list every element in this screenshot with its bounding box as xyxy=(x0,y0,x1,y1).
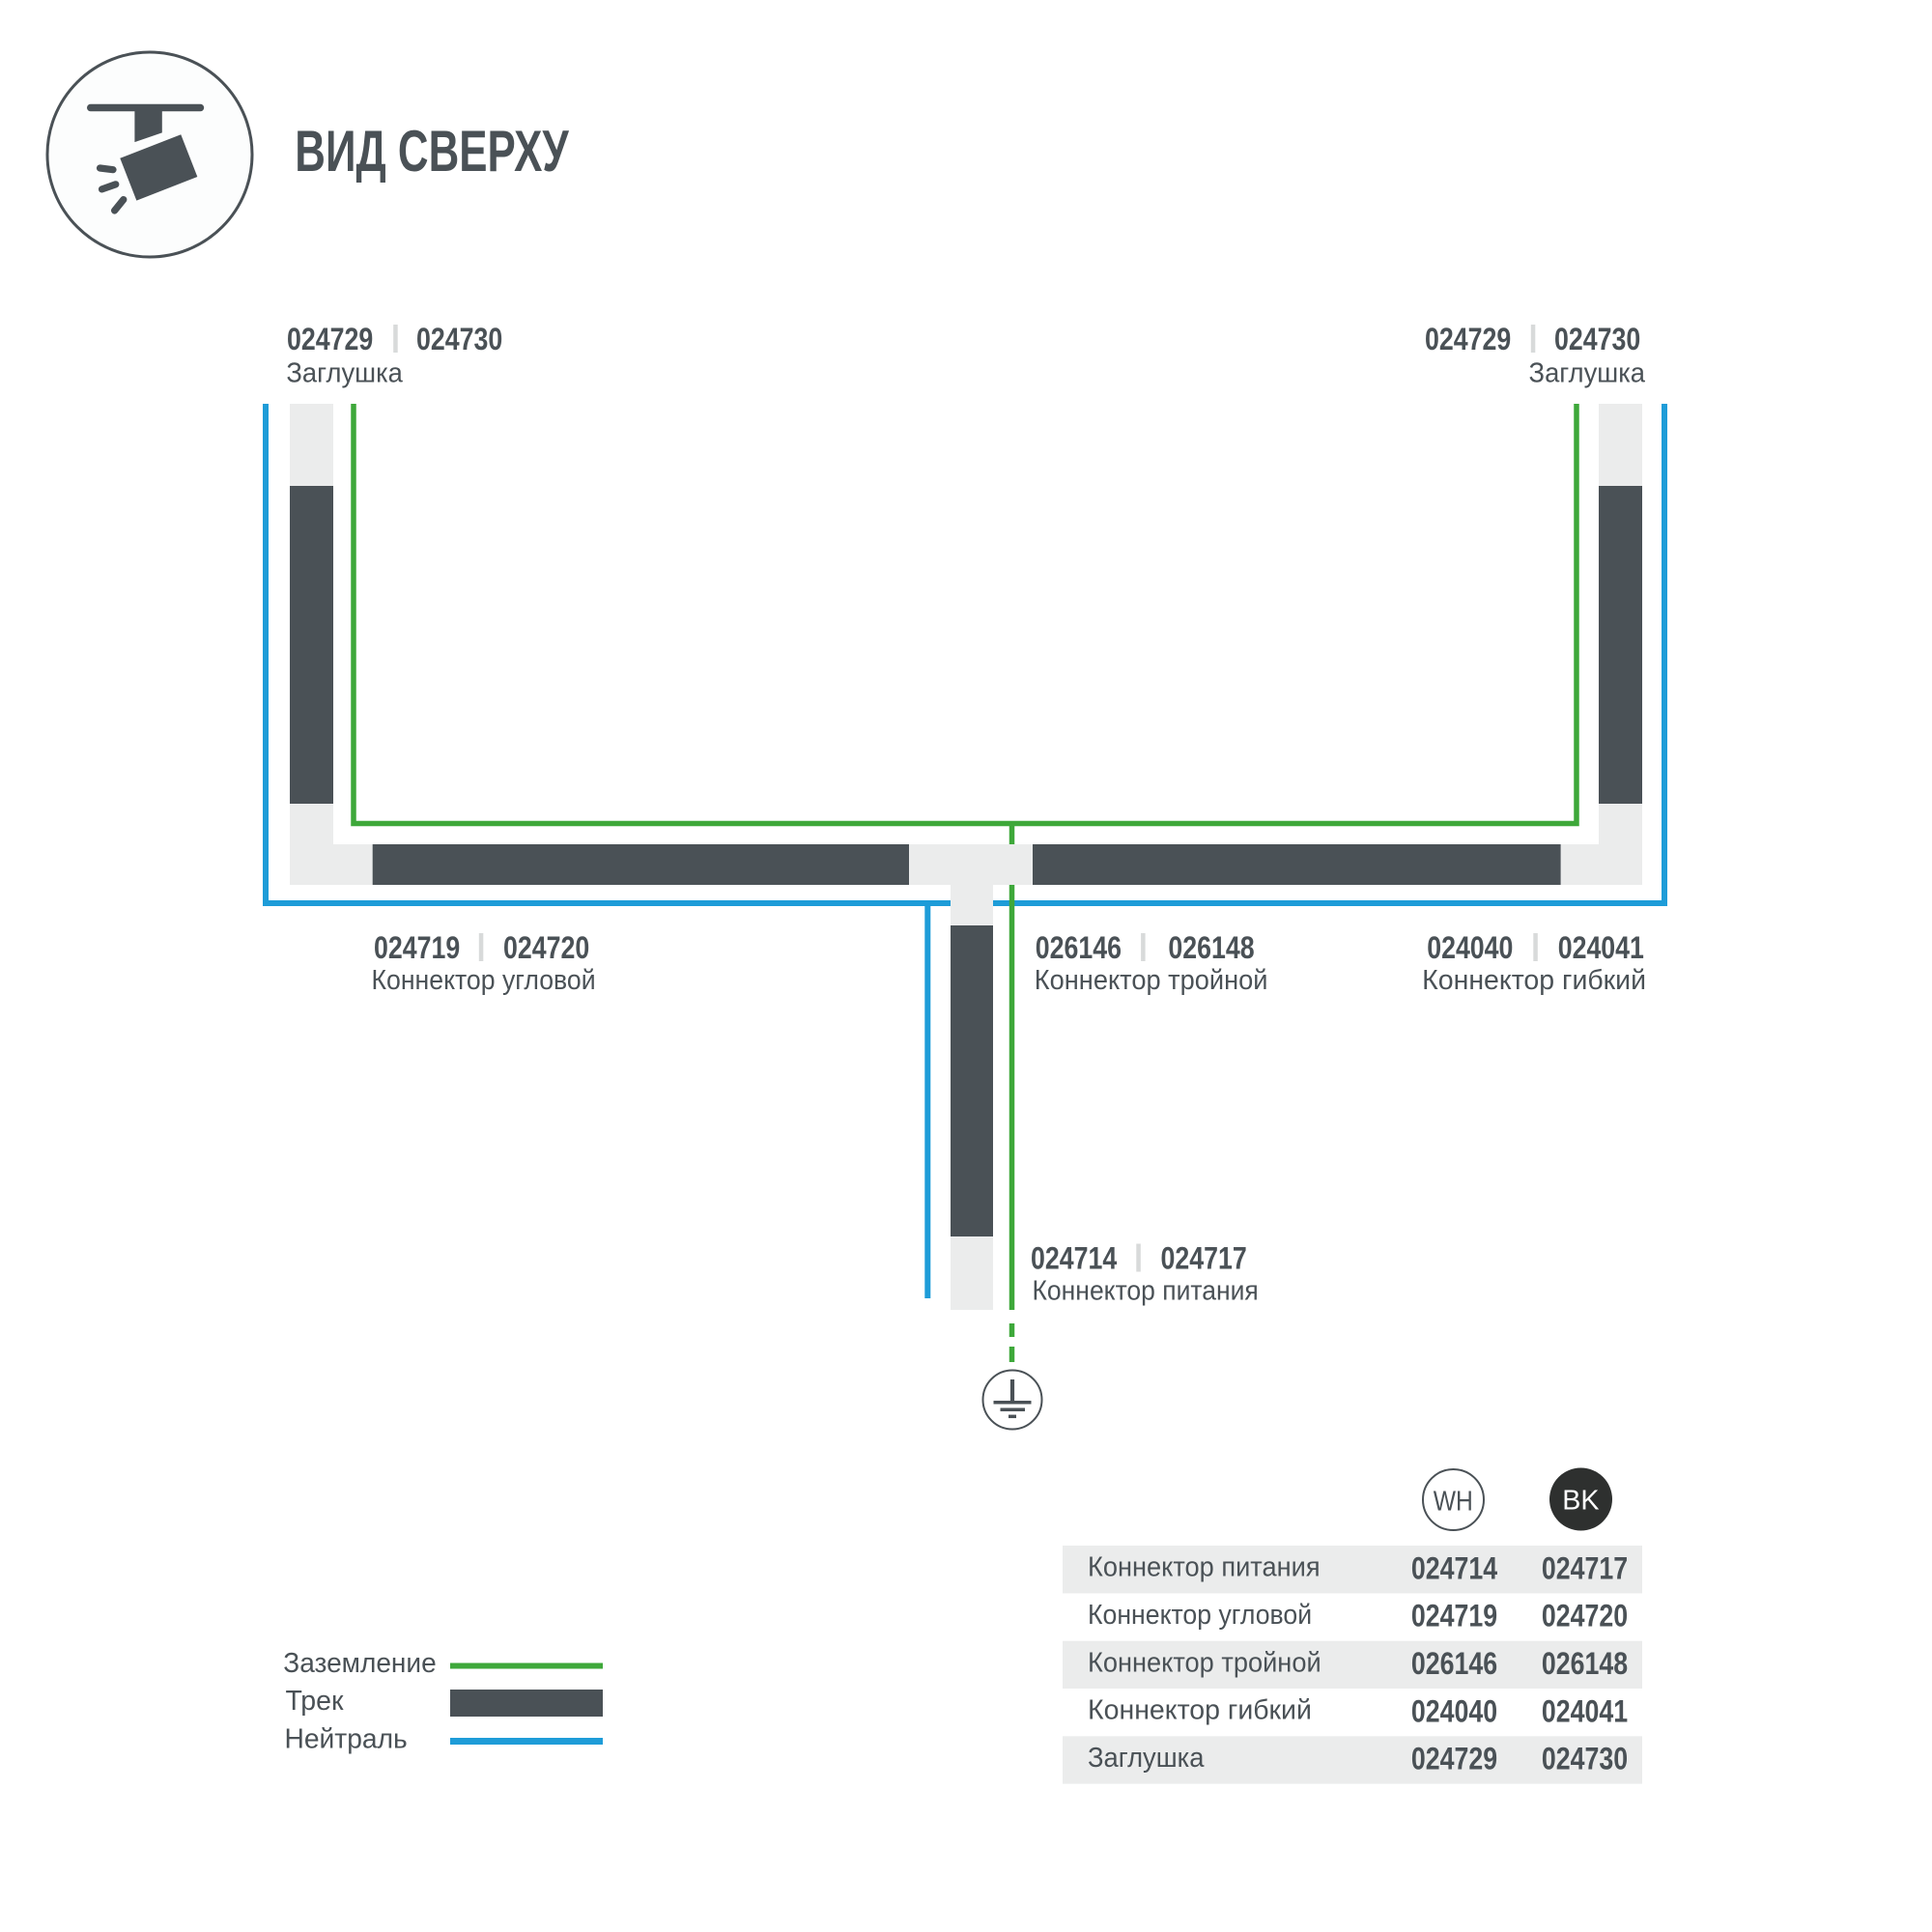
svg-text:Коннектор угловой: Коннектор угловой xyxy=(372,964,596,995)
svg-text:Коннектор питания: Коннектор питания xyxy=(1088,1551,1321,1582)
svg-text:BK: BK xyxy=(1562,1485,1599,1516)
svg-text:024714: 024714 xyxy=(1411,1551,1498,1586)
svg-text:026146: 026146 xyxy=(1036,931,1122,966)
svg-text:ВИД СВЕРХУ: ВИД СВЕРХУ xyxy=(295,119,569,184)
svg-text:024717: 024717 xyxy=(1161,1241,1247,1276)
svg-text:024040: 024040 xyxy=(1427,931,1513,966)
svg-text:024730: 024730 xyxy=(1554,323,1640,357)
svg-text:024717: 024717 xyxy=(1542,1551,1628,1586)
svg-text:026148: 026148 xyxy=(1168,931,1254,966)
svg-text:024714: 024714 xyxy=(1031,1241,1118,1276)
svg-text:Заглушка: Заглушка xyxy=(286,357,403,388)
svg-text:Коннектор тройной: Коннектор тройной xyxy=(1035,965,1268,996)
svg-text:024719: 024719 xyxy=(374,931,460,966)
svg-text:Коннектор тройной: Коннектор тройной xyxy=(1088,1647,1321,1678)
svg-text:024040: 024040 xyxy=(1411,1694,1497,1729)
svg-text:Коннектор питания: Коннектор питания xyxy=(1033,1275,1259,1306)
svg-text:Коннектор угловой: Коннектор угловой xyxy=(1088,1599,1312,1630)
svg-text:Коннектор гибкий: Коннектор гибкий xyxy=(1088,1695,1312,1726)
svg-text:Заземление: Заземление xyxy=(283,1647,436,1678)
svg-text:024041: 024041 xyxy=(1558,931,1644,966)
svg-text:Нейтраль: Нейтраль xyxy=(285,1723,408,1754)
svg-text:026146: 026146 xyxy=(1411,1647,1497,1682)
svg-text:024041: 024041 xyxy=(1542,1694,1628,1729)
svg-text:024730: 024730 xyxy=(416,323,502,357)
svg-text:024720: 024720 xyxy=(503,931,589,966)
svg-text:024730: 024730 xyxy=(1542,1742,1628,1776)
svg-text:024719: 024719 xyxy=(1411,1599,1497,1634)
svg-text:024729: 024729 xyxy=(287,323,373,357)
svg-text:026148: 026148 xyxy=(1542,1647,1628,1682)
svg-text:Заглушка: Заглушка xyxy=(1529,357,1646,388)
svg-text:Трек: Трек xyxy=(286,1686,345,1717)
svg-text:024720: 024720 xyxy=(1542,1599,1628,1634)
svg-text:Коннектор гибкий: Коннектор гибкий xyxy=(1422,965,1646,996)
svg-text:Заглушка: Заглушка xyxy=(1088,1742,1205,1773)
svg-text:WH: WH xyxy=(1434,1486,1473,1517)
svg-text:024729: 024729 xyxy=(1425,323,1511,357)
svg-text:024729: 024729 xyxy=(1411,1742,1497,1776)
